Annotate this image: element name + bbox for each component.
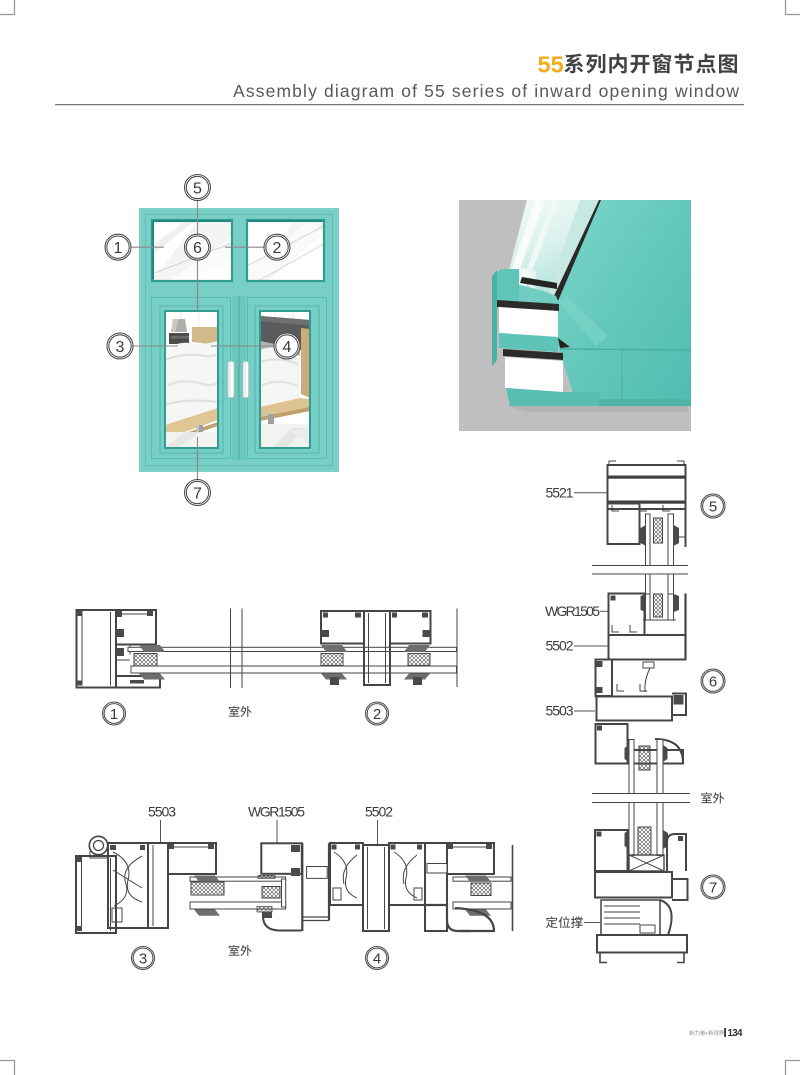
svg-text:5: 5 (193, 180, 202, 197)
svg-text:2: 2 (273, 240, 282, 257)
svg-text:5521: 5521 (546, 485, 574, 501)
svg-text:WGR1505: WGR1505 (545, 603, 600, 619)
svg-text:7: 7 (193, 485, 202, 502)
svg-text:WGR1505: WGR1505 (248, 804, 305, 820)
svg-text:3: 3 (139, 950, 147, 967)
svg-text:2: 2 (373, 706, 381, 723)
svg-text:6: 6 (193, 240, 202, 257)
svg-text:3: 3 (116, 339, 125, 356)
svg-text:4: 4 (283, 339, 292, 356)
svg-text:7: 7 (709, 879, 717, 896)
svg-text:Assembly diagram of 55 series: Assembly diagram of 55 series of inward … (233, 81, 739, 101)
svg-text:5503: 5503 (148, 804, 176, 820)
svg-text:5502: 5502 (365, 804, 393, 820)
svg-text:55: 55 (538, 51, 564, 77)
svg-text:5502: 5502 (546, 638, 574, 654)
svg-text:134: 134 (728, 1028, 744, 1039)
svg-text:6: 6 (709, 673, 717, 690)
svg-text:5: 5 (709, 498, 717, 515)
svg-text:5503: 5503 (546, 703, 574, 719)
svg-text:1: 1 (114, 240, 123, 257)
svg-text:1: 1 (110, 706, 118, 723)
svg-text:4: 4 (373, 950, 381, 967)
